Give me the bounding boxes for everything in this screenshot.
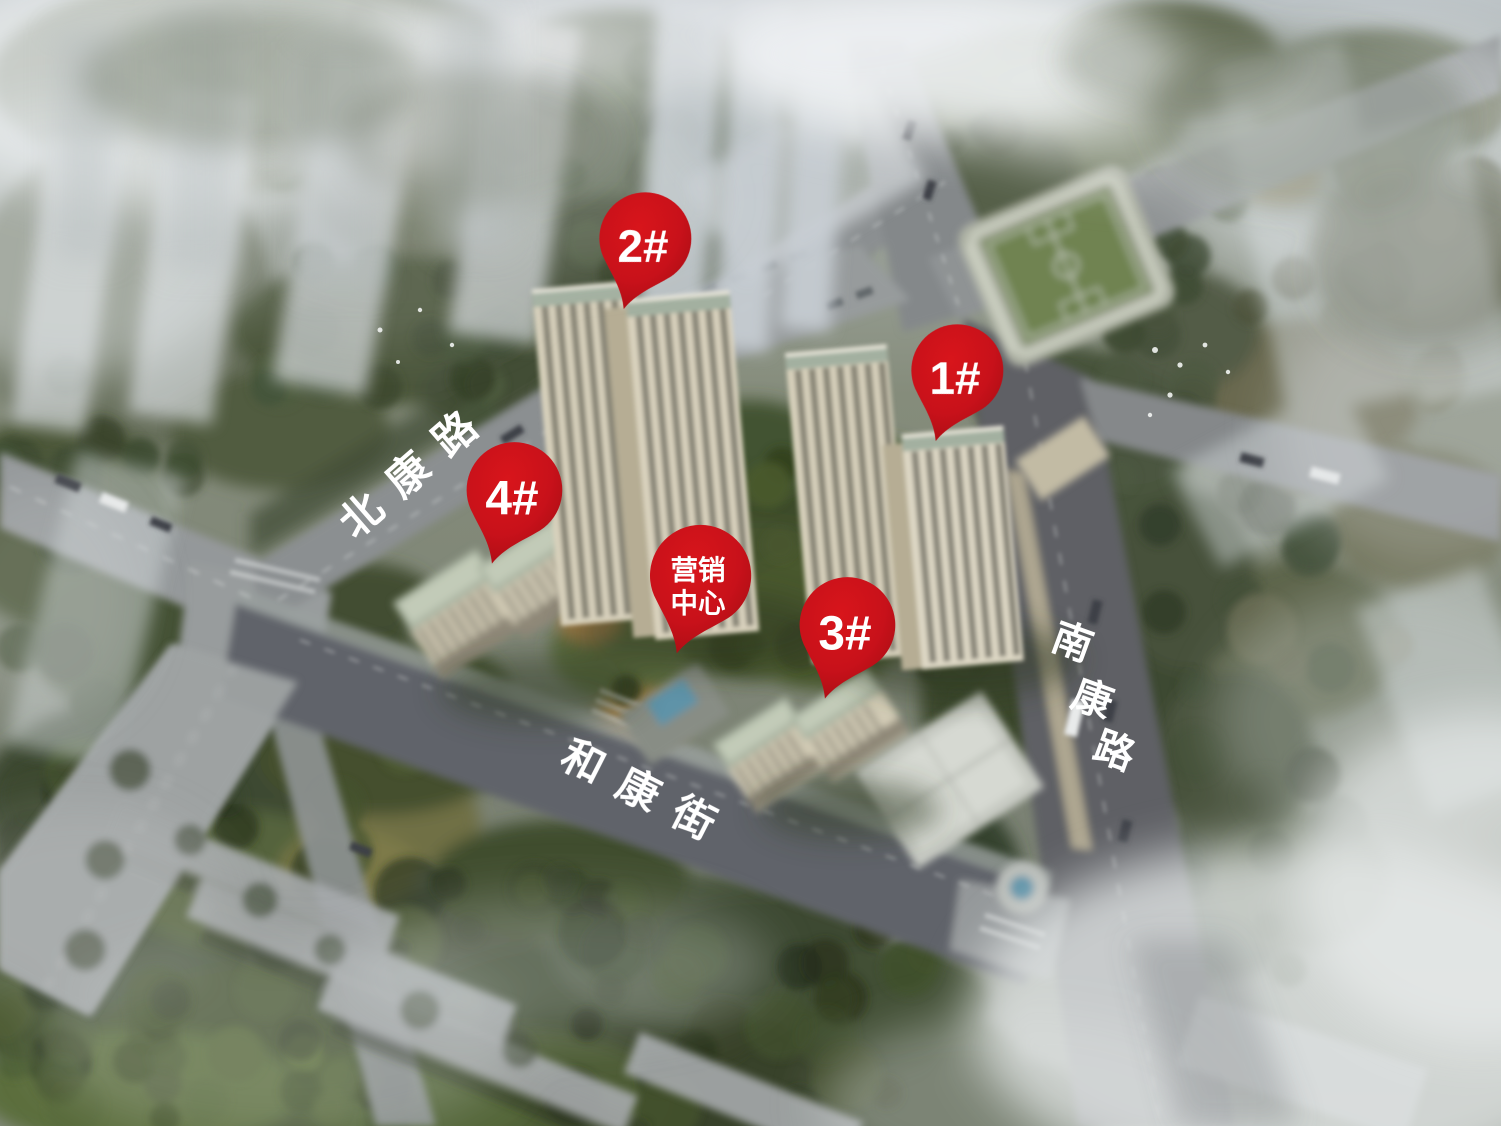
- svg-text:3#: 3#: [818, 608, 871, 661]
- svg-text:1#: 1#: [929, 352, 980, 404]
- svg-text:营销: 营销: [671, 555, 726, 586]
- svg-text:4#: 4#: [485, 473, 538, 526]
- svg-text:2#: 2#: [617, 220, 668, 272]
- svg-text:中心: 中心: [671, 588, 726, 619]
